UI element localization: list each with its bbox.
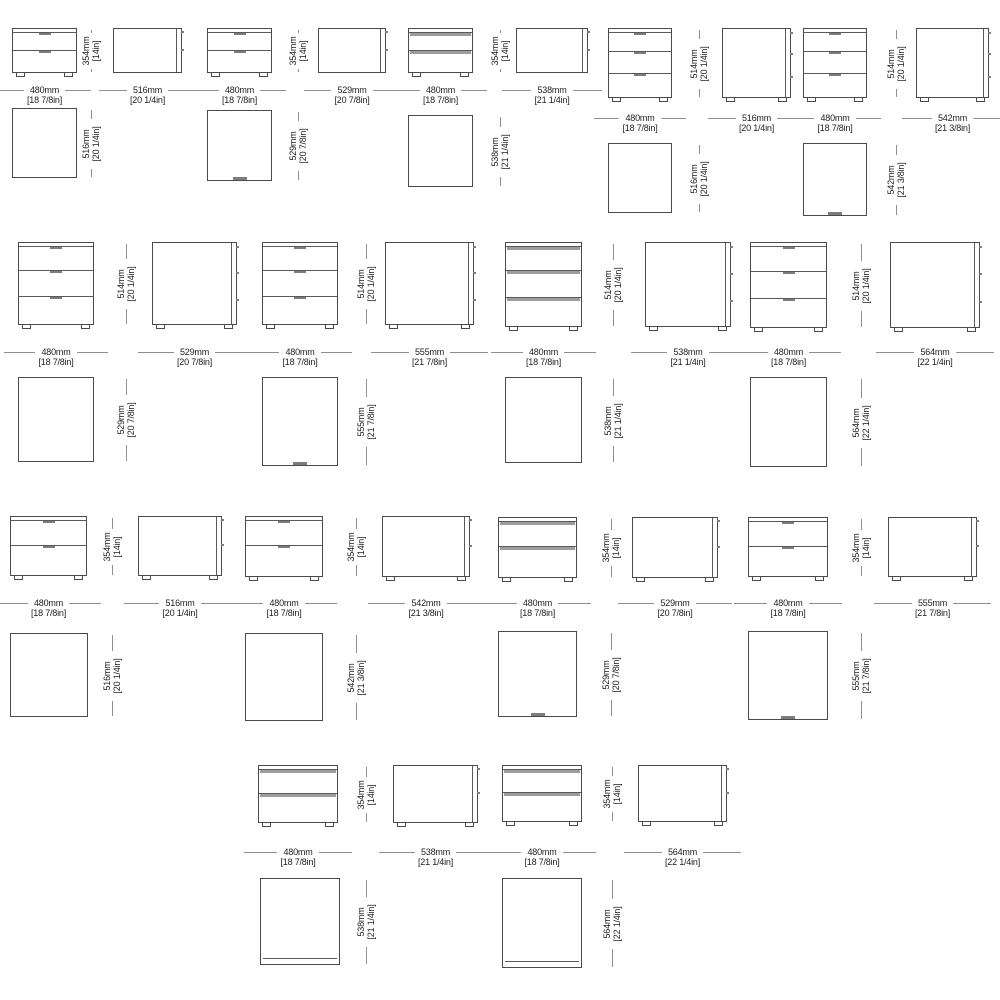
side-view-3drawer bbox=[645, 242, 731, 327]
plan-view bbox=[18, 377, 94, 462]
dimension-line bbox=[613, 310, 614, 326]
dimension-line bbox=[356, 518, 357, 529]
depth-dimension: 516mm[20 1/4in] bbox=[81, 110, 101, 177]
dimension-line bbox=[394, 90, 420, 91]
plan-view bbox=[245, 633, 323, 721]
width-dimension: 555mm[21 7/8in] bbox=[874, 598, 991, 618]
width-mm-label: 480mm bbox=[524, 847, 559, 857]
dimension-line bbox=[112, 565, 113, 576]
width-dimension: 480mm[18 7/8in] bbox=[789, 113, 881, 133]
dimension-line bbox=[304, 90, 331, 91]
width-dimension: 480mm[18 7/8in] bbox=[734, 598, 842, 618]
dimension-line bbox=[856, 118, 881, 119]
front-view-3drawer bbox=[18, 242, 94, 325]
plan-view bbox=[10, 633, 88, 717]
height-mm-label: 514mm bbox=[603, 267, 613, 302]
height-dimension: 354mm[14in] bbox=[601, 519, 621, 577]
width-dimension: 480mm[18 7/8in] bbox=[0, 85, 91, 105]
depth-dimension: 555mm[21 7/8in] bbox=[356, 379, 376, 465]
height-dimension-label: 514mm[20 1/4in] bbox=[116, 259, 136, 309]
dimension-line bbox=[126, 244, 127, 259]
front-view-3drawer bbox=[803, 28, 867, 98]
depth-dimension-label: 516mm[20 1/4in] bbox=[102, 651, 122, 701]
depth-dimension-label: 516mm[20 1/4in] bbox=[689, 154, 709, 204]
height-dimension-text: 514mm[20 1/4in] bbox=[356, 266, 376, 301]
side-edge-line bbox=[983, 29, 984, 97]
side-view-3drawer bbox=[152, 242, 237, 325]
depth-in-label: [22 1/4in] bbox=[861, 405, 871, 440]
side-view-2drawer bbox=[138, 516, 222, 576]
foot bbox=[389, 324, 398, 329]
depth-dimension-text: 538mm[21 1/4in] bbox=[490, 134, 510, 169]
width-in-label: [18 7/8in] bbox=[526, 357, 561, 367]
dimension-line bbox=[366, 947, 367, 964]
width-dimension: 480mm[18 7/8in] bbox=[488, 847, 596, 867]
height-dimension: 354mm[14in] bbox=[102, 518, 122, 575]
height-in-label: [14in] bbox=[861, 533, 871, 562]
width-dimension-label: 480mm[18 7/8in] bbox=[814, 113, 855, 133]
height-in-label: [20 1/4in] bbox=[861, 268, 871, 303]
width-dimension: 529mm[20 7/8in] bbox=[304, 85, 400, 105]
drawer-edge-tick bbox=[979, 246, 982, 248]
depth-mm-label: 542mm bbox=[886, 162, 896, 197]
drawer-edge-tick bbox=[979, 301, 982, 303]
width-in-label: [18 7/8in] bbox=[27, 95, 62, 105]
drawer-edge-tick bbox=[730, 300, 733, 302]
dimension-line bbox=[611, 633, 612, 650]
depth-mm-label: 516mm bbox=[102, 658, 112, 693]
dimension-line bbox=[366, 309, 367, 324]
drawer-edge-tick bbox=[236, 272, 239, 274]
dimension-line bbox=[861, 311, 862, 328]
drawer-edge-tick bbox=[473, 272, 476, 274]
drawer-edge-tick bbox=[988, 32, 991, 34]
width-in-label: [18 7/8in] bbox=[520, 608, 555, 618]
drawer-handle-strip bbox=[504, 793, 580, 796]
foot bbox=[612, 97, 621, 102]
foot bbox=[262, 822, 271, 827]
dimension-line bbox=[461, 90, 487, 91]
width-mm-label: 480mm bbox=[280, 847, 315, 857]
height-in-label: [14in] bbox=[112, 532, 122, 561]
depth-mm-label: 542mm bbox=[346, 660, 356, 695]
width-dimension: 480mm[18 7/8in] bbox=[594, 113, 686, 133]
foot bbox=[16, 72, 25, 77]
drawer-edge-tick bbox=[385, 31, 388, 33]
side-view-2drawer bbox=[393, 765, 478, 823]
foot bbox=[224, 324, 233, 329]
depth-in-label: [20 7/8in] bbox=[126, 402, 136, 437]
height-dimension-text: 514mm[20 1/4in] bbox=[689, 46, 709, 81]
drawer-handle-strip bbox=[500, 522, 575, 525]
side-edge-line bbox=[472, 766, 473, 822]
drawer-handle-tick bbox=[829, 52, 841, 54]
dimension-line bbox=[708, 118, 736, 119]
dimension-line bbox=[809, 352, 841, 353]
side-view-2drawer bbox=[318, 28, 386, 73]
width-in-label: [20 1/4in] bbox=[739, 123, 774, 133]
depth-mm-label: 516mm bbox=[689, 161, 699, 196]
height-in-label: [14in] bbox=[612, 779, 622, 808]
dimension-line bbox=[703, 852, 741, 853]
depth-mm-label: 564mm bbox=[851, 405, 861, 440]
dimension-line bbox=[366, 379, 367, 397]
front-view-2drawer bbox=[498, 517, 577, 578]
width-dimension-label: 480mm[18 7/8in] bbox=[277, 847, 318, 867]
dimension-line bbox=[368, 603, 405, 604]
dimension-line bbox=[611, 700, 612, 717]
drawer-edge-tick bbox=[469, 545, 472, 547]
drawer-handle-tick bbox=[50, 271, 62, 273]
drawer-edge-tick bbox=[790, 76, 793, 78]
width-dimension: 564mm[22 1/4in] bbox=[876, 347, 994, 367]
depth-mm-label: 555mm bbox=[356, 404, 366, 439]
width-dimension-label: 480mm[18 7/8in] bbox=[263, 598, 304, 618]
depth-dimension-label: 538mm[21 1/4in] bbox=[490, 127, 510, 177]
drawer-handle-tick bbox=[829, 74, 841, 76]
drawer-edge-tick bbox=[477, 768, 480, 770]
drawer-edge-tick bbox=[236, 246, 239, 248]
drawer-handle-tick bbox=[634, 74, 646, 76]
depth-in-label: [21 7/8in] bbox=[861, 658, 871, 693]
drawer-handle-tick bbox=[278, 521, 290, 523]
height-mm-label: 354mm bbox=[851, 533, 861, 562]
height-dimension: 514mm[20 1/4in] bbox=[603, 244, 623, 326]
drawer-edge-tick bbox=[988, 76, 991, 78]
width-dimension: 542mm[21 3/8in] bbox=[368, 598, 484, 618]
dimension-line bbox=[484, 603, 517, 604]
width-mm-label: 538mm bbox=[670, 347, 705, 357]
height-dimension: 354mm[14in] bbox=[851, 519, 871, 576]
dimension-line bbox=[371, 352, 409, 353]
height-in-label: [20 1/4in] bbox=[613, 267, 623, 302]
dimension-line bbox=[558, 603, 591, 604]
width-dimension: 564mm[22 1/4in] bbox=[624, 847, 741, 867]
depth-dimension-label: 564mm[22 1/4in] bbox=[602, 899, 622, 949]
depth-dimension: 564mm[22 1/4in] bbox=[851, 379, 871, 466]
dimension-line bbox=[168, 90, 196, 91]
plan-view bbox=[608, 143, 672, 213]
depth-dimension: 529mm[20 7/8in] bbox=[601, 633, 621, 716]
front-view-2drawer bbox=[502, 765, 582, 822]
height-in-label: [20 1/4in] bbox=[699, 46, 709, 81]
height-dimension-text: 354mm[14in] bbox=[102, 532, 122, 561]
width-dimension-label: 516mm[20 1/4in] bbox=[736, 113, 777, 133]
plan-handle-tick bbox=[781, 716, 795, 719]
front-view-3drawer bbox=[505, 242, 582, 327]
drawer-handle-tick bbox=[829, 33, 841, 35]
foot bbox=[397, 822, 406, 827]
dimension-line bbox=[612, 949, 613, 968]
height-dimension: 354mm[14in] bbox=[288, 30, 308, 72]
dimension-line bbox=[896, 205, 897, 215]
dimension-line bbox=[611, 519, 612, 530]
width-dimension-label: 529mm[20 7/8in] bbox=[331, 85, 372, 105]
side-view-3drawer bbox=[385, 242, 474, 325]
foot bbox=[211, 72, 220, 77]
width-dimension-label: 480mm[18 7/8in] bbox=[521, 847, 562, 867]
side-edge-line bbox=[974, 243, 975, 327]
depth-dimension: 555mm[21 7/8in] bbox=[851, 633, 871, 719]
dimension-line bbox=[366, 813, 367, 823]
width-dimension: 480mm[18 7/8in] bbox=[394, 85, 487, 105]
depth-dimension: 516mm[20 1/4in] bbox=[689, 145, 709, 212]
dimension-line bbox=[456, 852, 492, 853]
height-dimension-label: 514mm[20 1/4in] bbox=[689, 39, 709, 89]
dimension-line bbox=[876, 352, 914, 353]
side-edge-line bbox=[468, 243, 469, 324]
height-mm-label: 354mm bbox=[102, 532, 112, 561]
width-mm-label: 480mm bbox=[31, 598, 66, 608]
width-mm-label: 529mm bbox=[334, 85, 369, 95]
width-mm-label: 480mm bbox=[817, 113, 852, 123]
dimension-line bbox=[896, 89, 897, 98]
plan-view bbox=[750, 377, 827, 467]
drawer-handle-strip bbox=[500, 547, 575, 550]
dimension-line bbox=[366, 767, 367, 777]
depth-dimension: 538mm[21 1/4in] bbox=[490, 117, 510, 186]
height-dimension-label: 514mm[20 1/4in] bbox=[356, 259, 376, 309]
front-view-2drawer bbox=[12, 28, 77, 73]
foot bbox=[266, 324, 275, 329]
drawer-handle-strip bbox=[260, 770, 336, 773]
side-edge-line bbox=[785, 29, 786, 97]
width-mm-label: 564mm bbox=[917, 347, 952, 357]
dimension-line bbox=[661, 118, 686, 119]
dimension-line bbox=[563, 852, 596, 853]
dimension-line bbox=[624, 852, 662, 853]
depth-dimension-label: 538mm[21 1/4in] bbox=[603, 396, 623, 446]
width-in-label: [18 7/8in] bbox=[282, 357, 317, 367]
depth-in-label: [21 1/4in] bbox=[613, 403, 623, 438]
width-dimension-label: 529mm[20 7/8in] bbox=[174, 347, 215, 367]
depth-dimension: 542mm[21 3/8in] bbox=[886, 145, 906, 215]
dimension-line bbox=[193, 90, 219, 91]
foot bbox=[752, 576, 761, 581]
width-dimension: 542mm[21 3/8in] bbox=[902, 113, 1000, 133]
foot bbox=[142, 575, 151, 580]
width-dimension: 516mm[20 1/4in] bbox=[124, 598, 236, 618]
height-dimension-label: 354mm[14in] bbox=[851, 530, 871, 566]
height-dimension: 514mm[20 1/4in] bbox=[689, 30, 709, 97]
width-in-label: [20 7/8in] bbox=[334, 95, 369, 105]
height-dimension-label: 354mm[14in] bbox=[102, 529, 122, 565]
width-dimension-label: 480mm[18 7/8in] bbox=[420, 85, 461, 105]
dimension-line bbox=[124, 603, 159, 604]
dimension-line bbox=[611, 566, 612, 577]
depth-mm-label: 538mm bbox=[490, 134, 500, 169]
width-mm-label: 529mm bbox=[657, 598, 692, 608]
width-dimension: 480mm[18 7/8in] bbox=[4, 347, 108, 367]
drawer-edge-tick bbox=[221, 544, 224, 546]
depth-in-label: [20 1/4in] bbox=[112, 658, 122, 693]
depth-dimension-label: 555mm[21 7/8in] bbox=[356, 397, 376, 447]
foot bbox=[310, 576, 319, 581]
depth-mm-label: 529mm bbox=[288, 128, 298, 163]
width-mm-label: 516mm bbox=[162, 598, 197, 608]
dimension-line bbox=[789, 118, 814, 119]
depth-dimension-text: 529mm[20 7/8in] bbox=[116, 402, 136, 437]
width-mm-label: 538mm bbox=[418, 847, 453, 857]
width-dimension: 529mm[20 7/8in] bbox=[138, 347, 251, 367]
dimension-line bbox=[248, 352, 279, 353]
dimension-line bbox=[260, 90, 286, 91]
dimension-line bbox=[613, 446, 614, 463]
width-dimension-label: 480mm[18 7/8in] bbox=[767, 598, 808, 618]
side-edge-line bbox=[725, 243, 726, 326]
width-in-label: [18 7/8in] bbox=[38, 357, 73, 367]
width-dimension: 480mm[18 7/8in] bbox=[231, 598, 337, 618]
depth-dimension: 529mm[20 7/8in] bbox=[116, 379, 136, 461]
width-in-label: [21 3/8in] bbox=[408, 608, 443, 618]
dimension-line bbox=[0, 603, 28, 604]
foot bbox=[718, 326, 727, 331]
width-mm-label: 542mm bbox=[408, 598, 443, 608]
drawer-edge-tick bbox=[976, 545, 979, 547]
depth-mm-label: 516mm bbox=[81, 126, 91, 161]
width-dimension-label: 480mm[18 7/8in] bbox=[279, 347, 320, 367]
drawer-edge-tick bbox=[385, 49, 388, 51]
dimension-line bbox=[356, 703, 357, 721]
drawer-handle-tick bbox=[782, 522, 794, 524]
dimension-line bbox=[321, 352, 352, 353]
dimension-line bbox=[861, 379, 862, 398]
dimension-line bbox=[356, 635, 357, 653]
height-mm-label: 514mm bbox=[356, 266, 366, 301]
side-edge-line bbox=[176, 29, 177, 72]
plan-view bbox=[260, 878, 340, 965]
width-dimension-label: 564mm[22 1/4in] bbox=[662, 847, 703, 867]
drawer-handle-tick bbox=[783, 272, 795, 274]
foot bbox=[636, 577, 645, 582]
height-mm-label: 354mm bbox=[346, 532, 356, 561]
height-dimension: 354mm[14in] bbox=[346, 518, 366, 576]
foot bbox=[815, 576, 824, 581]
width-dimension-label: 480mm[18 7/8in] bbox=[24, 85, 65, 105]
drawer-handle-strip bbox=[410, 51, 471, 54]
depth-in-label: [20 1/4in] bbox=[91, 126, 101, 161]
dimension-line bbox=[366, 244, 367, 259]
width-mm-label: 480mm bbox=[771, 347, 806, 357]
width-in-label: [18 7/8in] bbox=[817, 123, 852, 133]
foot bbox=[461, 324, 470, 329]
foot bbox=[894, 327, 903, 332]
width-dimension: 480mm[18 7/8in] bbox=[491, 347, 596, 367]
side-edge-line bbox=[464, 517, 465, 576]
plan-view bbox=[748, 631, 828, 720]
height-dimension: 514mm[20 1/4in] bbox=[886, 30, 906, 97]
width-mm-label: 555mm bbox=[915, 598, 950, 608]
width-mm-label: 480mm bbox=[27, 85, 62, 95]
width-dimension: 555mm[21 7/8in] bbox=[371, 347, 488, 367]
height-in-label: [20 1/4in] bbox=[126, 266, 136, 301]
side-view-3drawer bbox=[722, 28, 791, 98]
dimension-line bbox=[973, 118, 1000, 119]
dimension-line bbox=[696, 603, 732, 604]
width-dimension: 480mm[18 7/8in] bbox=[484, 598, 591, 618]
height-dimension-label: 354mm[14in] bbox=[288, 33, 308, 69]
drawer-edge-tick bbox=[587, 49, 590, 51]
foot bbox=[325, 822, 334, 827]
dimension-line bbox=[126, 379, 127, 395]
width-in-label: [18 7/8in] bbox=[423, 95, 458, 105]
width-dimension-label: 480mm[18 7/8in] bbox=[619, 113, 660, 133]
drawer-handle-tick bbox=[50, 297, 62, 299]
drawer-handle-tick bbox=[782, 547, 794, 549]
depth-dimension-label: 542mm[21 3/8in] bbox=[886, 155, 906, 205]
foot bbox=[465, 822, 474, 827]
foot bbox=[569, 326, 578, 331]
dimension-line bbox=[613, 379, 614, 396]
dimension-line bbox=[631, 352, 667, 353]
width-mm-label: 538mm bbox=[534, 85, 569, 95]
plan-base-line bbox=[263, 958, 337, 959]
plan-view bbox=[505, 377, 582, 463]
drawer-edge-tick bbox=[726, 768, 729, 770]
height-mm-label: 514mm bbox=[886, 46, 896, 81]
dimension-line bbox=[112, 518, 113, 529]
height-dimension-text: 354mm[14in] bbox=[81, 36, 101, 65]
dimension-line bbox=[612, 880, 613, 899]
drawer-handle-strip bbox=[507, 247, 580, 250]
width-mm-label: 480mm bbox=[520, 598, 555, 608]
dimension-line bbox=[896, 30, 897, 39]
dimension-line bbox=[699, 89, 700, 98]
dimension-line bbox=[65, 90, 91, 91]
front-view-2drawer bbox=[748, 517, 828, 577]
depth-dimension: 538mm[21 1/4in] bbox=[603, 379, 623, 462]
foot bbox=[642, 821, 651, 826]
dimension-line bbox=[861, 244, 862, 261]
dimension-line bbox=[612, 767, 613, 776]
foot bbox=[976, 97, 985, 102]
height-dimension-text: 514mm[20 1/4in] bbox=[603, 267, 623, 302]
height-in-label: [14in] bbox=[91, 36, 101, 65]
width-dimension-label: 555mm[21 7/8in] bbox=[912, 598, 953, 618]
width-dimension: 529mm[20 7/8in] bbox=[618, 598, 732, 618]
dimension-line bbox=[502, 90, 531, 91]
width-in-label: [18 7/8in] bbox=[524, 857, 559, 867]
depth-dimension-text: 542mm[21 3/8in] bbox=[886, 162, 906, 197]
width-dimension-label: 538mm[21 1/4in] bbox=[415, 847, 456, 867]
depth-dimension: 538mm[21 1/4in] bbox=[356, 880, 376, 964]
drawer-handle-strip bbox=[260, 794, 336, 797]
drawer-handle-tick bbox=[783, 299, 795, 301]
width-dimension-label: 564mm[22 1/4in] bbox=[914, 347, 955, 367]
foot bbox=[209, 575, 218, 580]
drawer-edge-tick bbox=[236, 299, 239, 301]
plan-view bbox=[262, 377, 338, 466]
foot bbox=[726, 97, 735, 102]
side-edge-line bbox=[971, 518, 972, 576]
height-in-label: [20 1/4in] bbox=[366, 266, 376, 301]
width-mm-label: 480mm bbox=[266, 598, 301, 608]
foot bbox=[705, 577, 714, 582]
dimension-line bbox=[861, 566, 862, 577]
dimension-line bbox=[298, 171, 299, 180]
drawer-handle-tick bbox=[278, 546, 290, 548]
dimension-line bbox=[612, 812, 613, 821]
front-view-2drawer bbox=[408, 28, 473, 73]
front-view-2drawer bbox=[245, 516, 323, 577]
foot bbox=[892, 576, 901, 581]
foot bbox=[807, 97, 816, 102]
drawer-handle-tick bbox=[50, 247, 62, 249]
width-in-label: [21 1/4in] bbox=[534, 95, 569, 105]
height-dimension-text: 354mm[14in] bbox=[356, 780, 376, 809]
dimension-line bbox=[126, 445, 127, 461]
dimension-line bbox=[699, 145, 700, 154]
